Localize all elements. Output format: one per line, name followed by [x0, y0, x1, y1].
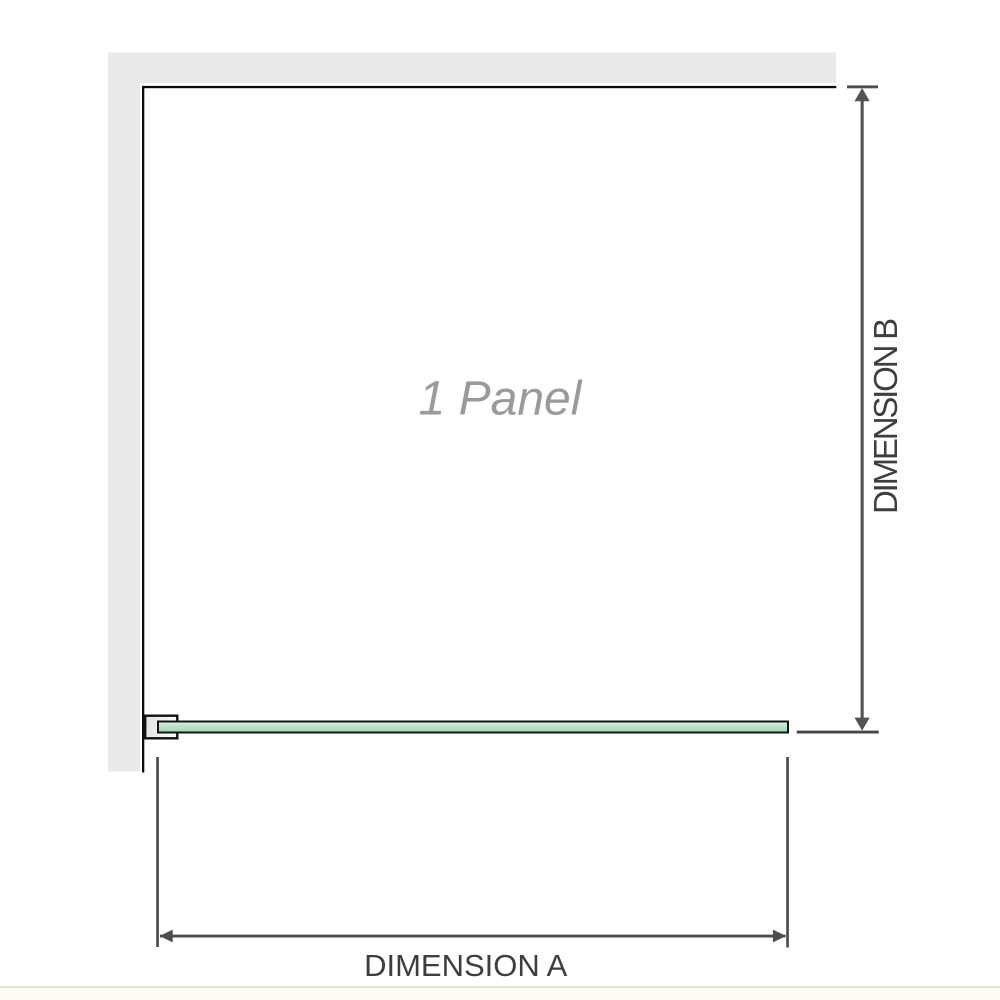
- svg-text:1 Panel: 1 Panel: [419, 372, 583, 425]
- svg-text:DIMENSION B: DIMENSION B: [867, 319, 904, 514]
- svg-text:DIMENSION A: DIMENSION A: [364, 948, 568, 983]
